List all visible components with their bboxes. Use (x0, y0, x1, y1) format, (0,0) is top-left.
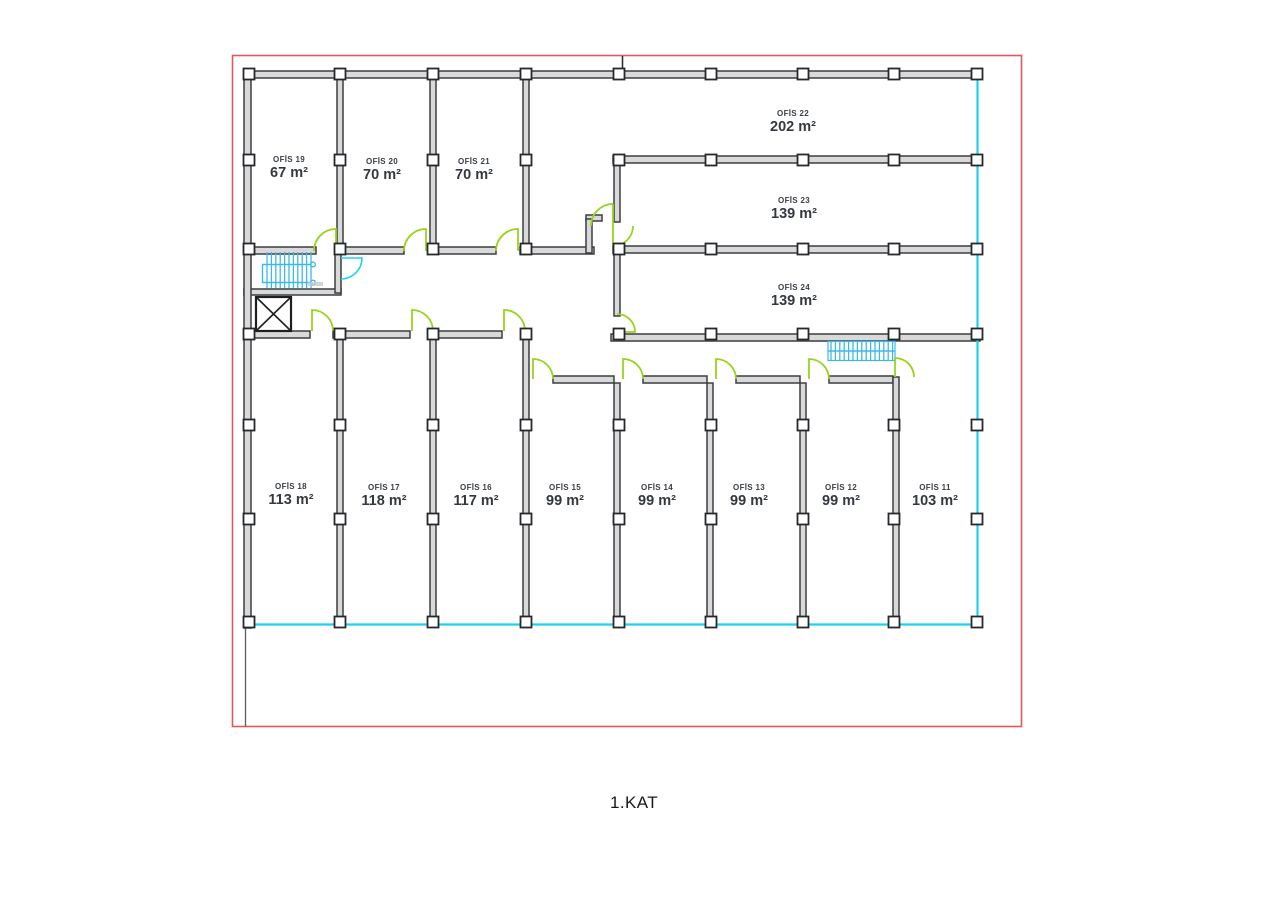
door-ofis14 (623, 359, 643, 379)
wall-ofis14-top (643, 376, 707, 383)
column-marker (972, 514, 983, 525)
column-marker (428, 617, 439, 628)
column-marker (706, 329, 717, 340)
door-ofis18 (312, 310, 333, 331)
wall-stair-bottom (244, 289, 341, 295)
wall-stair-right (335, 253, 341, 293)
column-marker (798, 244, 809, 255)
door-ofis15 (533, 359, 553, 379)
column-marker (244, 155, 255, 166)
column-marker (521, 514, 532, 525)
wall-18-17 (337, 338, 343, 624)
column-marker (706, 617, 717, 628)
column-marker (335, 420, 346, 431)
column-marker (798, 69, 809, 80)
column-marker (798, 155, 809, 166)
door-ofis12 (809, 359, 829, 379)
column-marker (521, 244, 532, 255)
column-marker (706, 514, 717, 525)
column-marker (521, 329, 532, 340)
column-marker (428, 329, 439, 340)
wall-rightblock-left-lower (614, 253, 620, 316)
door-ofis11 (895, 358, 914, 377)
column-marker (244, 420, 255, 431)
column-marker (798, 617, 809, 628)
column-marker (706, 155, 717, 166)
column-marker (335, 244, 346, 255)
stairs-lower-icon (828, 342, 895, 361)
column-marker (972, 244, 983, 255)
column-marker (889, 420, 900, 431)
column-marker (972, 155, 983, 166)
floor-plan-drawing (0, 0, 1281, 900)
door-swing-icons (312, 204, 914, 379)
column-marker (972, 69, 983, 80)
column-marker (521, 617, 532, 628)
wall-ofis12-top (829, 376, 893, 383)
column-marker (521, 69, 532, 80)
wall-16-15 (523, 334, 529, 624)
column-marker (972, 420, 983, 431)
wall-corridor-south (433, 331, 502, 338)
door-ofis19 (314, 229, 336, 251)
column-marker (244, 514, 255, 525)
column-marker (244, 244, 255, 255)
door-ofis22-double (591, 204, 633, 246)
stairs-upper-icon (263, 252, 324, 289)
column-marker (521, 420, 532, 431)
column-marker (521, 155, 532, 166)
column-marker (614, 617, 625, 628)
columns-layer (244, 69, 983, 628)
column-marker (614, 514, 625, 525)
column-marker (706, 420, 717, 431)
column-marker (889, 155, 900, 166)
column-marker (244, 69, 255, 80)
column-marker (614, 69, 625, 80)
column-marker (614, 420, 625, 431)
column-marker (335, 155, 346, 166)
wall-ofis15-top (553, 376, 614, 383)
column-marker (972, 329, 983, 340)
floor-title: 1.KAT (610, 793, 658, 813)
wall-12-11 (893, 377, 899, 624)
wall-ofis22-bottom (613, 156, 980, 163)
column-marker (428, 514, 439, 525)
floor-plan-canvas: OFİS 19 67 m² OFİS 20 70 m² OFİS 21 70 m… (0, 0, 1281, 900)
column-marker (335, 514, 346, 525)
column-marker (335, 329, 346, 340)
column-marker (706, 244, 717, 255)
column-marker (798, 420, 809, 431)
wall-ofis23-bottom (613, 246, 980, 253)
wall-ofis13-top (736, 376, 800, 383)
column-marker (428, 244, 439, 255)
wall-ofis24-bottom (611, 334, 980, 341)
column-marker (335, 617, 346, 628)
column-marker (428, 420, 439, 431)
wall-17-16 (430, 338, 436, 624)
wall-top (244, 71, 981, 78)
column-marker (706, 69, 717, 80)
column-marker (428, 155, 439, 166)
door-ofis20 (404, 229, 426, 251)
column-marker (614, 244, 625, 255)
column-marker (889, 617, 900, 628)
wall-rightblock-left-upper (614, 163, 620, 222)
door-ofis21 (496, 229, 518, 251)
column-marker (428, 69, 439, 80)
wall-corridor-north (338, 247, 404, 254)
door-stairwell (341, 258, 362, 279)
column-marker (889, 69, 900, 80)
column-marker (614, 155, 625, 166)
column-marker (972, 617, 983, 628)
column-marker (335, 69, 346, 80)
column-marker (798, 514, 809, 525)
column-marker (244, 329, 255, 340)
column-marker (889, 514, 900, 525)
column-marker (798, 329, 809, 340)
column-marker (244, 617, 255, 628)
column-marker (614, 329, 625, 340)
door-ofis13 (716, 359, 736, 379)
column-marker (889, 244, 900, 255)
stair-annotation (308, 282, 323, 286)
column-marker (889, 329, 900, 340)
elevator-icon (256, 297, 291, 331)
